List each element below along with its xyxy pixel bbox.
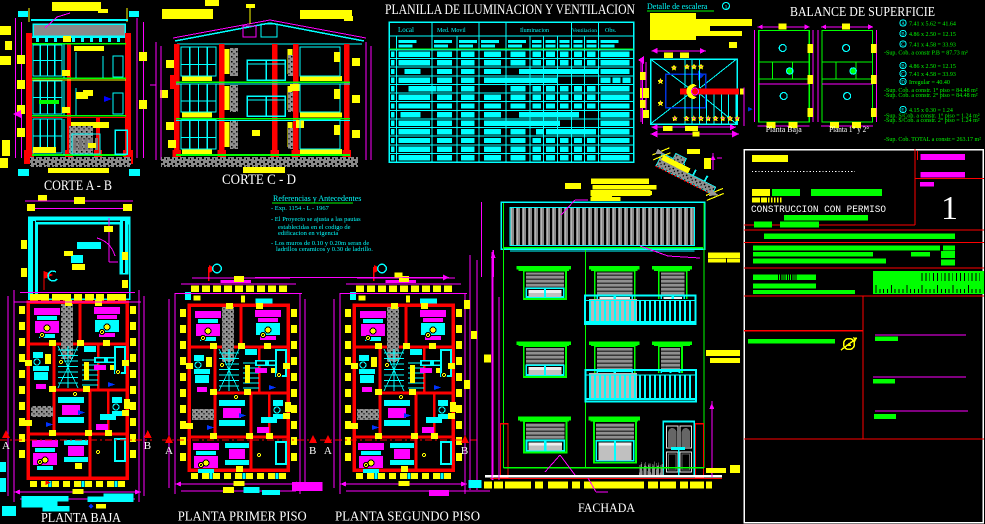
svg-text:-Sup. Cob. a constr. 2° piso =: -Sup. Cob. a constr. 2° piso = 84.48 m² (884, 92, 978, 99)
svg-text:B: B (461, 445, 468, 457)
svg-text:A: A (324, 445, 332, 457)
svg-text:A: A (901, 22, 905, 27)
svg-text:PLANTA BAJA: PLANTA BAJA (41, 511, 122, 524)
svg-text:Iluminacion: Iluminacion (520, 28, 549, 34)
svg-text:CORTE C - D: CORTE C - D (222, 172, 296, 188)
svg-text:Obs.: Obs. (605, 28, 617, 34)
svg-text:7.41 x 4.58 = 33.93: 7.41 x 4.58 = 33.93 (909, 72, 956, 78)
svg-text:-Sup. Cob. a constr P.B =: -Sup. Cob. a constr P.B = 87.73 m² (884, 51, 968, 57)
svg-text:1: 1 (725, 5, 728, 11)
svg-text:B: B (309, 445, 316, 457)
svg-text:PLANTA SEGUNDO PISO: PLANTA SEGUNDO PISO (335, 509, 480, 524)
svg-text:PLANTA PRIMER PISO: PLANTA PRIMER PISO (178, 509, 307, 524)
svg-text:FACHADA: FACHADA (578, 500, 636, 515)
svg-text:Ventilacion: Ventilacion (572, 28, 597, 34)
svg-text:Local: Local (398, 26, 414, 34)
svg-text:7.41 x 5.62 = 41.64: 7.41 x 5.62 = 41.64 (909, 22, 956, 28)
svg-text:Referencias y Antecedentes: Referencias y Antecedentes (273, 194, 361, 203)
svg-text:- El Proyecto se ajusta a las: - El Proyecto se ajusta a las pautas (271, 216, 361, 223)
svg-text:A: A (2, 440, 10, 452)
svg-text:CONSTRUCCION CON PERMISO: CONSTRUCCION CON PERMISO (751, 204, 886, 216)
svg-text:B: B (144, 440, 151, 452)
svg-text:A: A (165, 445, 173, 457)
svg-text:Med. Movil: Med. Movil (437, 28, 466, 34)
svg-text:Detalle de escalera: Detalle de escalera (647, 2, 708, 11)
svg-text:Irregular = 40.40: Irregular = 40.40 (909, 80, 950, 86)
svg-text:1: 1 (941, 190, 958, 227)
svg-text:-Sup. S/Cob. a constr. 2° piso: -Sup. S/Cob. a constr. 2° piso = 1.24 m² (884, 117, 980, 124)
svg-text:7.41 x 4.58 = 33.93: 7.41 x 4.58 = 33.93 (909, 43, 956, 49)
svg-text:PLANILLA DE ILUMINACION Y VENT: PLANILLA DE ILUMINACION Y VENTILACION (385, 2, 635, 18)
svg-text:Planta Baja: Planta Baja (766, 125, 802, 134)
svg-text:BALANCE DE SUPERFICIE: BALANCE DE SUPERFICIE (790, 5, 935, 20)
svg-text:D: D (901, 81, 905, 86)
svg-text:Planta 1° y 2°: Planta 1° y 2° (829, 125, 869, 134)
svg-text:-Sup. Cob. TOTAL a constr.= 26: -Sup. Cob. TOTAL a constr.= 263.17 m² (884, 137, 981, 143)
svg-text:ladrillos ceramicos y 0.30 de: ladrillos ceramicos y 0.30 de ladrillo. (276, 246, 373, 253)
svg-text:4.86 x 2.50 = 12.15: 4.86 x 2.50 = 12.15 (909, 64, 956, 70)
svg-text:edificacion en vigencia: edificacion en vigencia (278, 230, 338, 237)
svg-text:CORTE A - B: CORTE A - B (44, 178, 112, 194)
svg-text:- Exp. 1154 - L - 1967: - Exp. 1154 - L - 1967 (271, 205, 330, 212)
svg-text:4.86 x 2.50 = 12.15: 4.86 x 2.50 = 12.15 (909, 32, 956, 38)
